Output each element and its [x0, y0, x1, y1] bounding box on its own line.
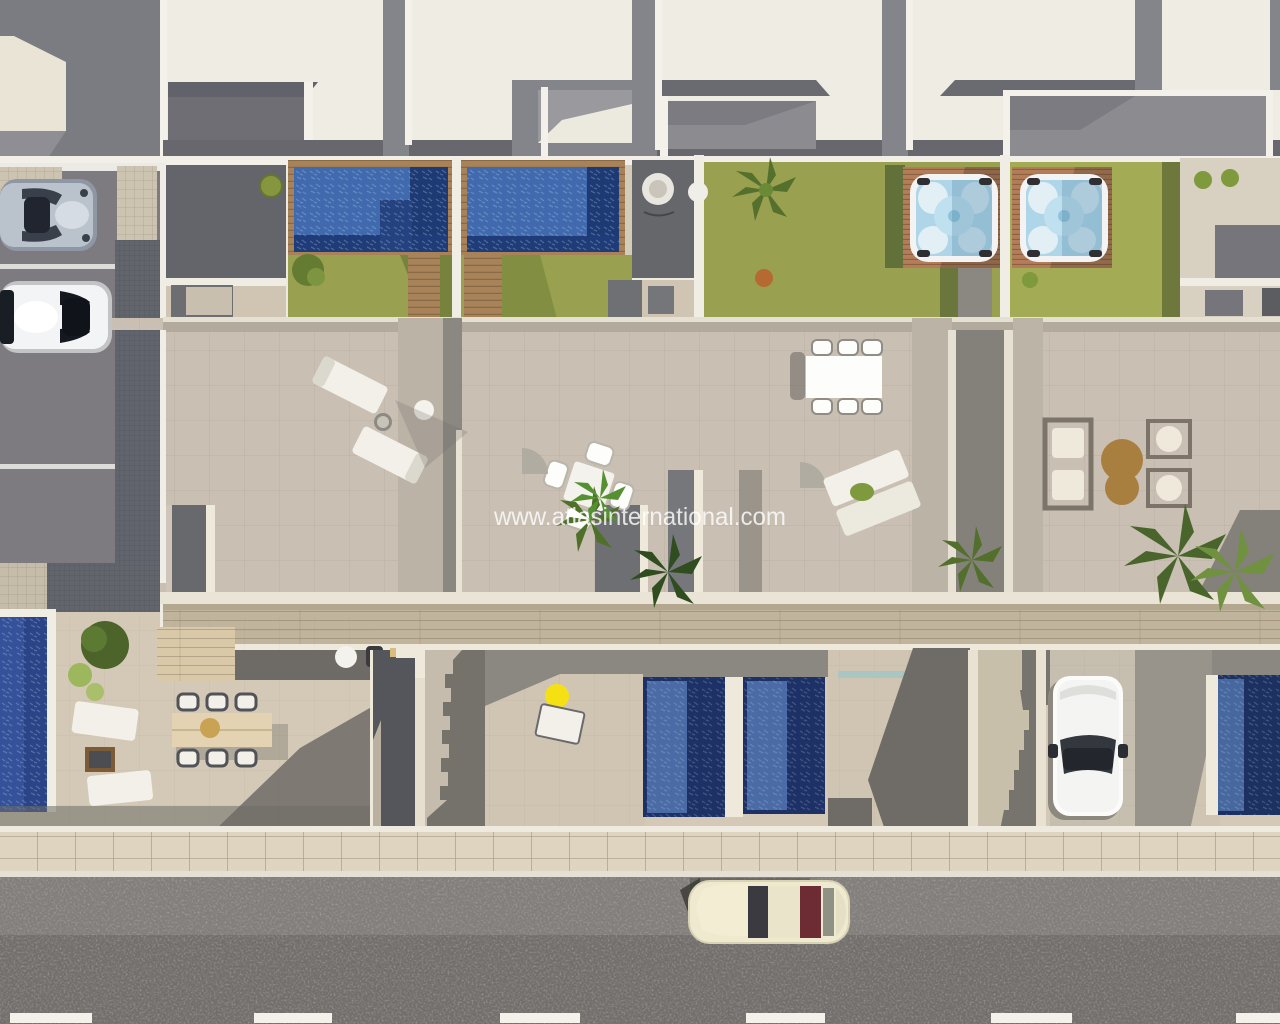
svg-text:www.atlasinternational.com: www.atlasinternational.com — [493, 503, 786, 531]
